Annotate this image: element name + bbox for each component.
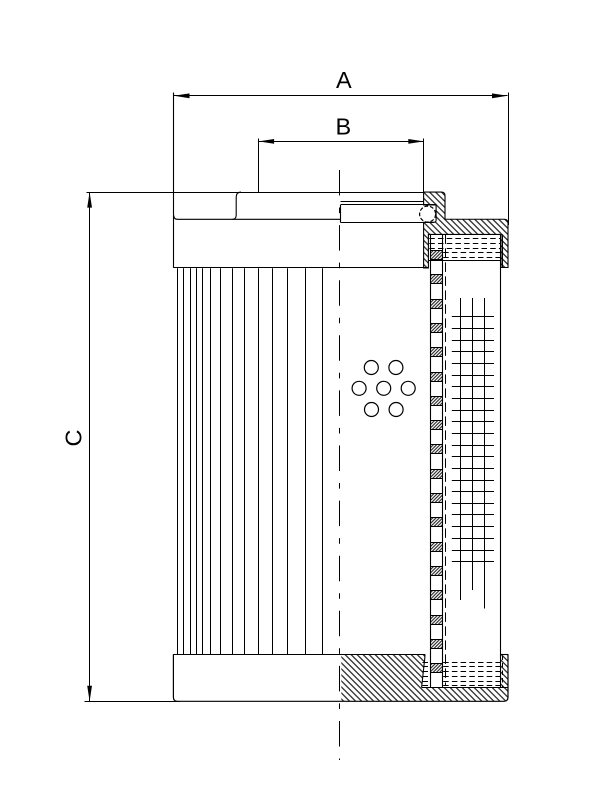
- svg-text:A: A: [336, 67, 352, 93]
- svg-text:C: C: [61, 429, 87, 446]
- svg-text:B: B: [335, 113, 351, 139]
